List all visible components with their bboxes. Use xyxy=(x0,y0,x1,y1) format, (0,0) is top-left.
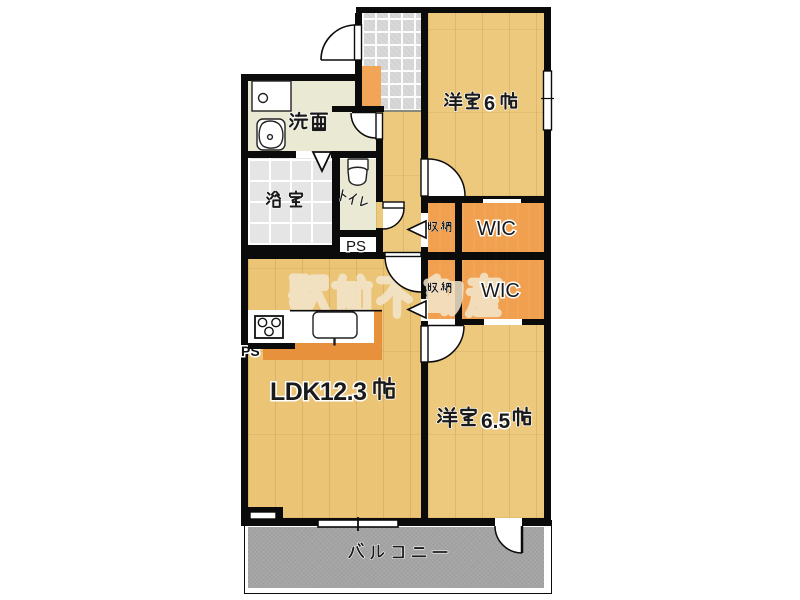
svg-text:WIC: WIC xyxy=(477,218,516,240)
svg-text:PS: PS xyxy=(346,238,366,255)
svg-text:WIC: WIC xyxy=(481,280,520,302)
svg-text:6: 6 xyxy=(484,93,495,115)
svg-text:LDK12.3: LDK12.3 xyxy=(270,378,367,406)
svg-text:6.5: 6.5 xyxy=(481,410,511,433)
